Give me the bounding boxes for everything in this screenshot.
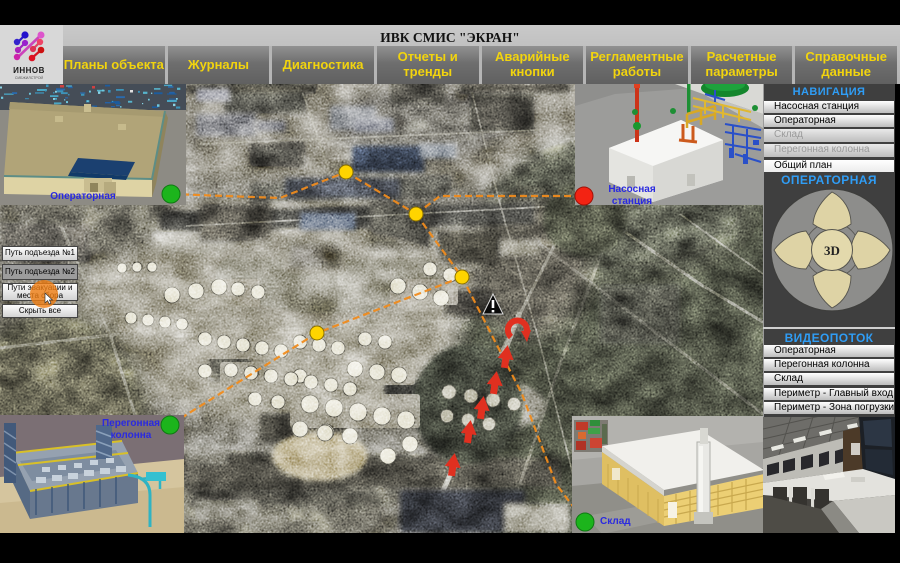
svg-text:3D: 3D: [824, 243, 840, 258]
svg-text:СИБЖИЛСТРОЙ: СИБЖИЛСТРОЙ: [15, 76, 44, 80]
svg-text:ИННОВ: ИННОВ: [13, 66, 45, 75]
